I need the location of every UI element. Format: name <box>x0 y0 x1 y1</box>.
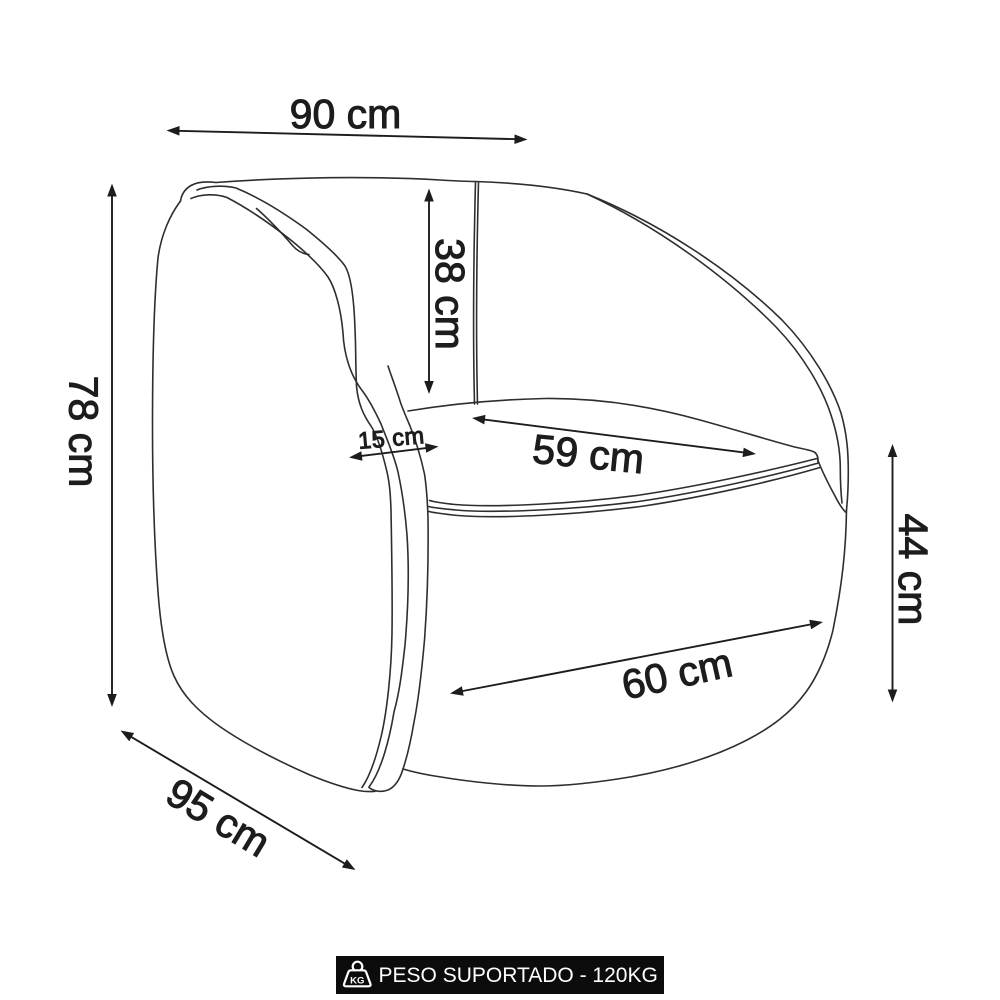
svg-text:59 cm: 59 cm <box>531 426 647 482</box>
svg-text:KG: KG <box>350 976 364 987</box>
svg-text:44 cm: 44 cm <box>890 514 936 626</box>
svg-text:PESO SUPORTADO - 120KG: PESO SUPORTADO - 120KG <box>379 964 658 987</box>
svg-text:90 cm: 90 cm <box>290 91 402 137</box>
svg-text:95 cm: 95 cm <box>159 769 278 866</box>
svg-text:78 cm: 78 cm <box>61 376 107 488</box>
svg-text:38 cm: 38 cm <box>427 238 473 350</box>
